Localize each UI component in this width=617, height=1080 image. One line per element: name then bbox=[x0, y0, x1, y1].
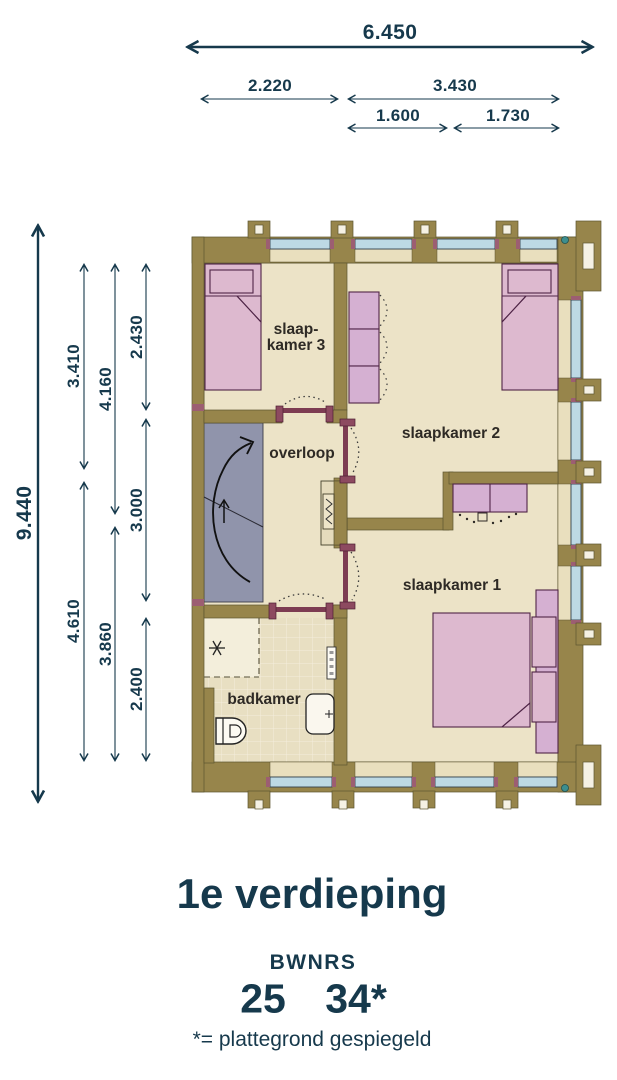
wall-bedroom3-bedroom2 bbox=[334, 263, 347, 410]
bwnr-number-left: 25 bbox=[240, 976, 286, 1023]
window bbox=[351, 762, 416, 787]
room-label-bedroom1: slaapkamer 1 bbox=[403, 577, 501, 595]
mirrored-note: *= plattegrond gespiegeld bbox=[193, 1028, 432, 1052]
pilaster bbox=[496, 221, 518, 238]
window bbox=[351, 239, 416, 262]
room-label-bedroom3-line2: kamer 3 bbox=[267, 337, 326, 355]
window bbox=[266, 762, 336, 787]
dim-label-1730: 1.730 bbox=[486, 106, 530, 126]
dim-label-3860: 3.860 bbox=[96, 622, 116, 666]
wardrobe-bedroom2 bbox=[349, 292, 379, 403]
window bbox=[266, 239, 334, 262]
dim-label-3000: 3.000 bbox=[127, 488, 147, 532]
wall-bathroom-east bbox=[334, 605, 347, 765]
pilaster bbox=[332, 791, 354, 809]
wall-junction-mark bbox=[192, 599, 204, 606]
room-label-landing: overloop bbox=[269, 445, 334, 463]
window bbox=[516, 239, 557, 262]
pilaster bbox=[576, 745, 601, 805]
wall-bedroom2-south-high bbox=[449, 472, 558, 484]
pilaster bbox=[248, 791, 270, 809]
pilaster bbox=[496, 791, 518, 809]
dim-label-4160: 4.160 bbox=[96, 367, 116, 411]
radiator-icon bbox=[327, 647, 336, 679]
bwnrs-label: BWNRS bbox=[270, 951, 357, 975]
window bbox=[558, 296, 581, 382]
toilet-icon bbox=[216, 718, 246, 744]
floor-title: 1e verdieping bbox=[177, 870, 448, 918]
window bbox=[514, 762, 557, 787]
dim-label-2400: 2.400 bbox=[127, 667, 147, 711]
room-label-bedroom2: slaapkamer 2 bbox=[402, 425, 500, 443]
pilaster bbox=[413, 791, 435, 809]
dim-label-width-total: 6.450 bbox=[363, 21, 418, 45]
dim-label-2220: 2.220 bbox=[248, 76, 292, 96]
wall-bathroom-west-thick bbox=[204, 688, 214, 763]
windows-right bbox=[558, 296, 581, 624]
room-label-bathroom: badkamer bbox=[227, 691, 300, 709]
washbasin-icon bbox=[306, 694, 334, 734]
wall-junction-mark bbox=[192, 404, 204, 411]
pilaster bbox=[576, 461, 601, 483]
wall-bedroom1-north-low bbox=[347, 518, 449, 530]
pilaster bbox=[331, 221, 353, 238]
pilaster bbox=[576, 544, 601, 566]
pilaster bbox=[576, 623, 601, 645]
vent-dot-icon bbox=[562, 785, 569, 792]
pilaster bbox=[414, 221, 436, 238]
vent-dot-icon bbox=[562, 237, 569, 244]
desk-bedroom1 bbox=[453, 484, 527, 512]
floorplan-drawing bbox=[0, 0, 617, 1080]
bed-single-bedroom2 bbox=[502, 264, 558, 390]
pilaster bbox=[248, 221, 270, 238]
dim-label-1600: 1.600 bbox=[376, 106, 420, 126]
shaft-vent-icon bbox=[321, 481, 347, 545]
window bbox=[431, 762, 498, 787]
bwnr-number-right: 34* bbox=[325, 976, 387, 1023]
dim-label-2430: 2.430 bbox=[127, 315, 147, 359]
wall-bathroom-north bbox=[204, 605, 275, 618]
pilaster bbox=[576, 379, 601, 401]
wall-bedroom3-south bbox=[204, 410, 282, 423]
window bbox=[558, 562, 581, 624]
dim-label-3410: 3.410 bbox=[64, 344, 84, 388]
pilaster bbox=[576, 221, 601, 291]
left-wall bbox=[192, 237, 204, 792]
window bbox=[433, 239, 499, 262]
dim-label-height-total: 9.440 bbox=[13, 486, 37, 541]
dim-label-3430: 3.430 bbox=[433, 76, 477, 96]
window bbox=[558, 480, 581, 549]
dim-label-4610: 4.610 bbox=[64, 599, 84, 643]
window bbox=[558, 398, 581, 464]
bed-single-bedroom3 bbox=[205, 264, 261, 390]
floorplan-page: 6.450 2.220 3.430 1.600 1.730 9.440 3.41… bbox=[0, 0, 617, 1080]
